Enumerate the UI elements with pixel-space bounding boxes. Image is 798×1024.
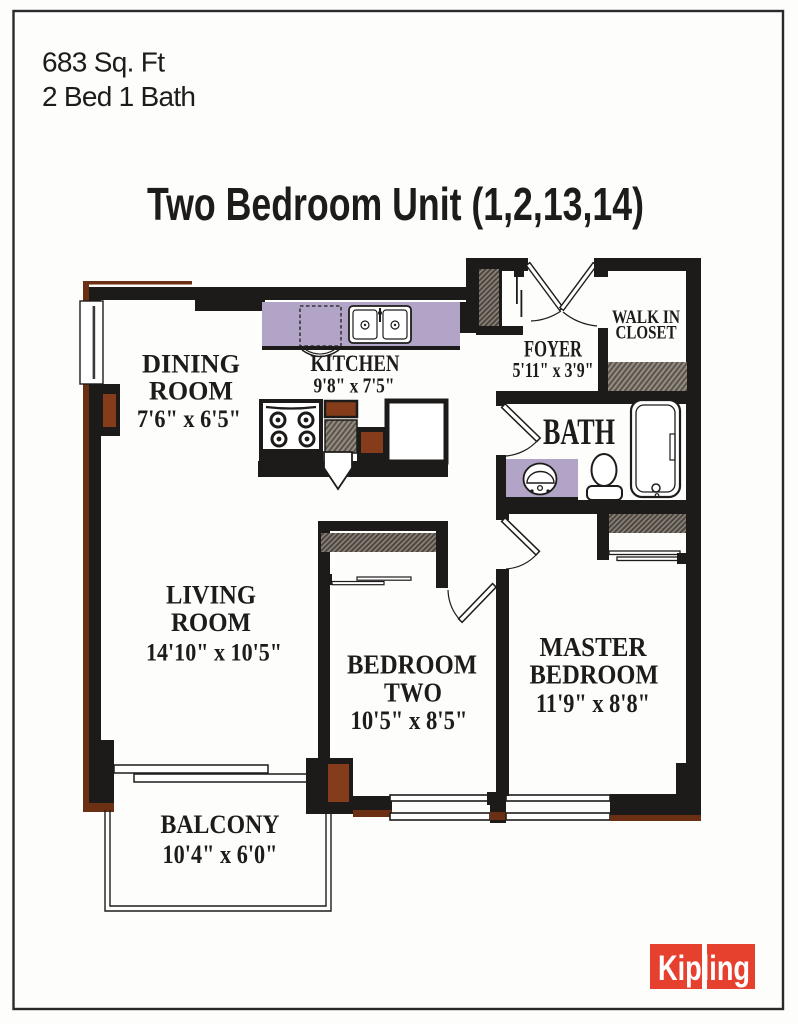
svg-text:2 Bed 1 Bath: 2 Bed 1 Bath <box>42 81 196 112</box>
svg-text:9'8" x 7'5": 9'8" x 7'5" <box>314 374 395 398</box>
svg-text:BEDROOM: BEDROOM <box>530 660 659 690</box>
svg-text:TWO: TWO <box>384 678 442 708</box>
svg-text:ROOM: ROOM <box>171 607 251 637</box>
svg-text:BEDROOM: BEDROOM <box>347 650 477 680</box>
svg-text:BALCONY: BALCONY <box>161 810 280 839</box>
svg-text:KITCHEN: KITCHEN <box>311 351 400 376</box>
svg-text:BATH: BATH <box>543 412 615 453</box>
svg-text:Two Bedroom Unit (1,2,13,14): Two Bedroom Unit (1,2,13,14) <box>147 178 644 230</box>
svg-text:683 Sq. Ft: 683 Sq. Ft <box>42 47 165 78</box>
svg-text:7'6" x 6'5": 7'6" x 6'5" <box>137 406 241 433</box>
svg-text:Kipling: Kipling <box>658 949 750 988</box>
svg-text:DINING: DINING <box>142 349 240 379</box>
svg-text:5'11" x 3'9": 5'11" x 3'9" <box>513 358 594 382</box>
svg-text:CLOSET: CLOSET <box>616 323 677 344</box>
svg-text:MASTER: MASTER <box>540 632 647 662</box>
svg-text:LIVING: LIVING <box>166 580 256 610</box>
svg-text:ROOM: ROOM <box>149 376 233 406</box>
svg-text:10'5" x 8'5": 10'5" x 8'5" <box>351 706 468 735</box>
svg-text:10'4" x 6'0": 10'4" x 6'0" <box>163 840 278 869</box>
svg-text:11'9" x 8'8": 11'9" x 8'8" <box>536 689 650 718</box>
svg-text:14'10" x 10'5": 14'10" x 10'5" <box>146 640 282 667</box>
